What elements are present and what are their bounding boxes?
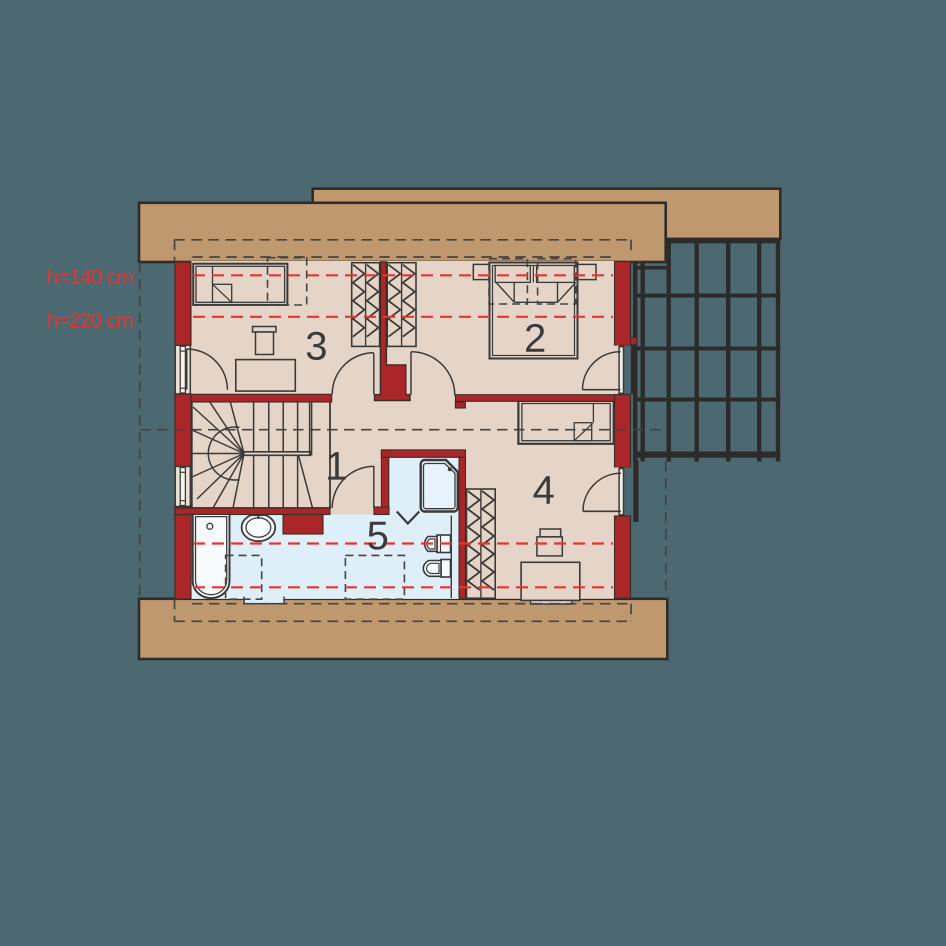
svg-text:3: 3 [305, 325, 327, 369]
svg-text:2: 2 [524, 317, 546, 361]
svg-text:4: 4 [533, 469, 555, 513]
svg-text:1: 1 [325, 445, 347, 489]
svg-text:5: 5 [367, 514, 389, 558]
svg-text:h=140 cm: h=140 cm [47, 266, 134, 289]
svg-text:h=220 cm: h=220 cm [47, 310, 134, 333]
